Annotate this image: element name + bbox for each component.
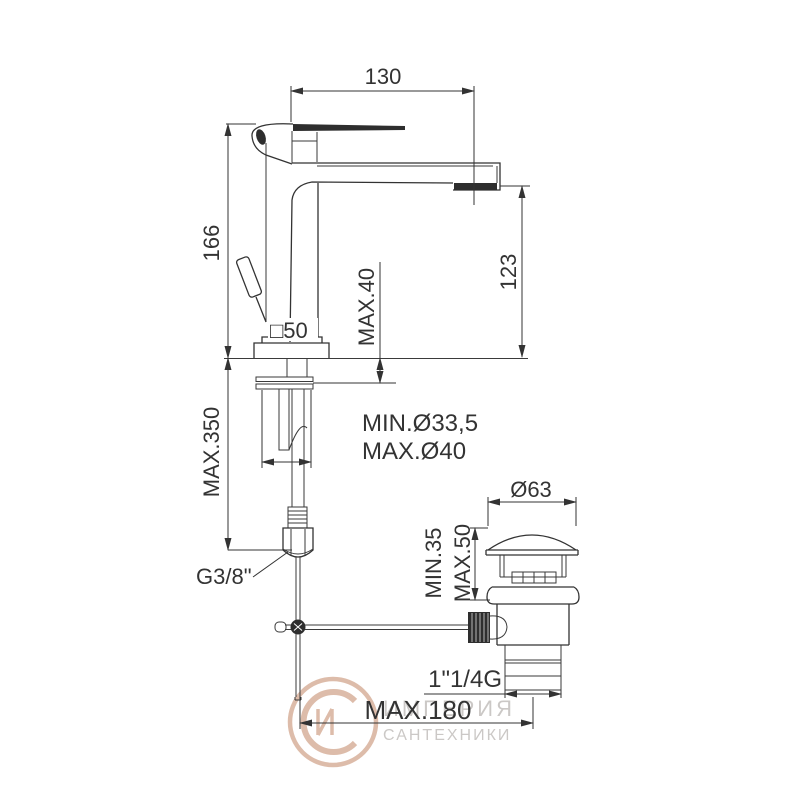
waste-cap-dome	[488, 535, 576, 550]
dim-square50-label: □50	[270, 318, 308, 343]
clamp-plate-upper	[256, 377, 313, 382]
dim-d63: Ø63	[488, 477, 576, 526]
hose-end-fitting	[288, 507, 307, 528]
faucet-cartridge-block	[292, 131, 317, 163]
waste-body	[497, 604, 569, 645]
waste-basin-flange	[487, 587, 579, 604]
faucet-handle-lever	[293, 124, 405, 131]
dim-130-label: 130	[365, 64, 402, 89]
dim-max50-label: MAX.50	[450, 524, 475, 602]
clamp-plate-lower	[256, 384, 313, 389]
dim-waste-thread: 1"1/4G	[424, 666, 561, 698]
dim-waste-height: MIN.35 MAX.50	[421, 524, 490, 602]
dim-supply-thread: G3/8"	[196, 552, 288, 589]
faucet-spout-inner-line	[317, 166, 497, 183]
leader-line	[253, 552, 288, 577]
dim-d63-label: Ø63	[510, 477, 552, 502]
supply-hose	[289, 389, 307, 507]
watermark-line2: САНТЕХНИКИ	[383, 727, 511, 744]
waste-cap-plate	[486, 550, 578, 555]
watermark-logo-c-glyph	[304, 692, 355, 752]
dim-max40-label: MAX.40	[354, 268, 379, 346]
lift-rod-diagonal	[256, 297, 266, 322]
linkage-coupler	[468, 612, 490, 643]
dim-waste-thread-label: 1"1/4G	[428, 666, 502, 693]
technical-drawing: ИМПЕРИЯ САНТЕХНИКИ	[0, 0, 800, 800]
linkage-coupler-joint	[490, 616, 507, 639]
dim-max180-label: MAX.180	[365, 695, 472, 725]
dim-g38-label: G3/8"	[196, 564, 252, 589]
dim-max40: MAX.40	[313, 262, 396, 383]
dim-square50: □50	[268, 318, 318, 343]
dim-max350-label: MAX.350	[199, 407, 224, 498]
faucet-aerator	[454, 183, 497, 190]
base-flange-plate	[254, 343, 329, 358]
dim-hole-diameter: MIN.Ø33,5 MAX.Ø40	[262, 390, 478, 468]
dim-hole-min-label: MIN.Ø33,5	[362, 410, 478, 437]
hose-end-ribs	[288, 511, 307, 523]
dim-hole-max-label: MAX.Ø40	[362, 438, 466, 465]
popup-rod-guide	[279, 389, 289, 450]
linkage-rod-end-cap	[275, 622, 286, 632]
dim-166-label: 166	[199, 225, 224, 262]
waste-tailpipe	[505, 645, 561, 690]
lift-rod-knob	[236, 256, 262, 298]
mounting-shank	[287, 358, 307, 377]
dim-123-label: 123	[496, 254, 521, 291]
dim-123: 123	[496, 186, 530, 357]
watermark-logo-i-glyph	[318, 709, 332, 735]
linkage-rod	[285, 625, 468, 630]
dim-min35-label: MIN.35	[421, 528, 446, 599]
